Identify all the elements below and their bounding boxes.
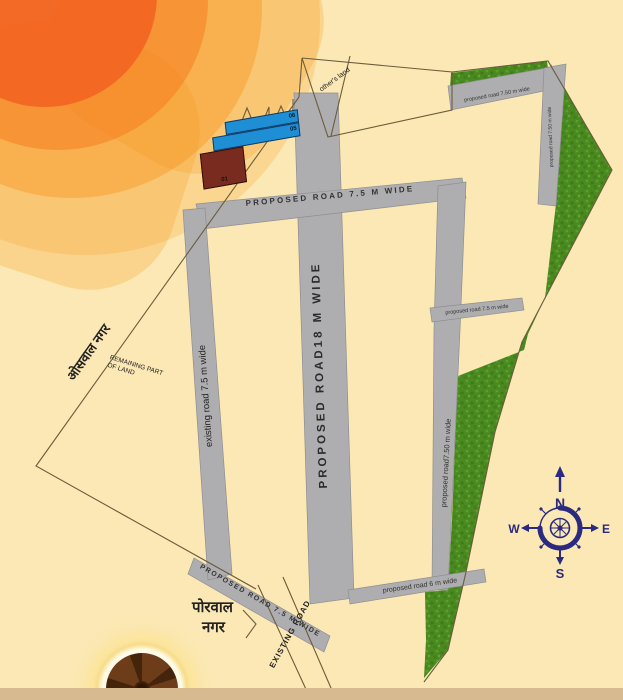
compass-s: S bbox=[556, 566, 565, 580]
compass-w: W bbox=[508, 522, 520, 536]
compass-rose: N W E S bbox=[508, 462, 612, 580]
site-plan-map: 060501 PROPOSED ROAD18 M WIDE PROPOSED R… bbox=[0, 0, 623, 700]
porwal-nagar-label: पोरवाल नगर bbox=[192, 598, 233, 638]
porwal-line2: नगर bbox=[192, 618, 233, 638]
bottom-border-strip bbox=[0, 688, 623, 700]
boundary-left bbox=[36, 97, 299, 589]
porwal-line1: पोरवाल bbox=[192, 598, 233, 618]
compass-e: E bbox=[602, 522, 610, 536]
plot-01: 01 bbox=[200, 146, 247, 189]
